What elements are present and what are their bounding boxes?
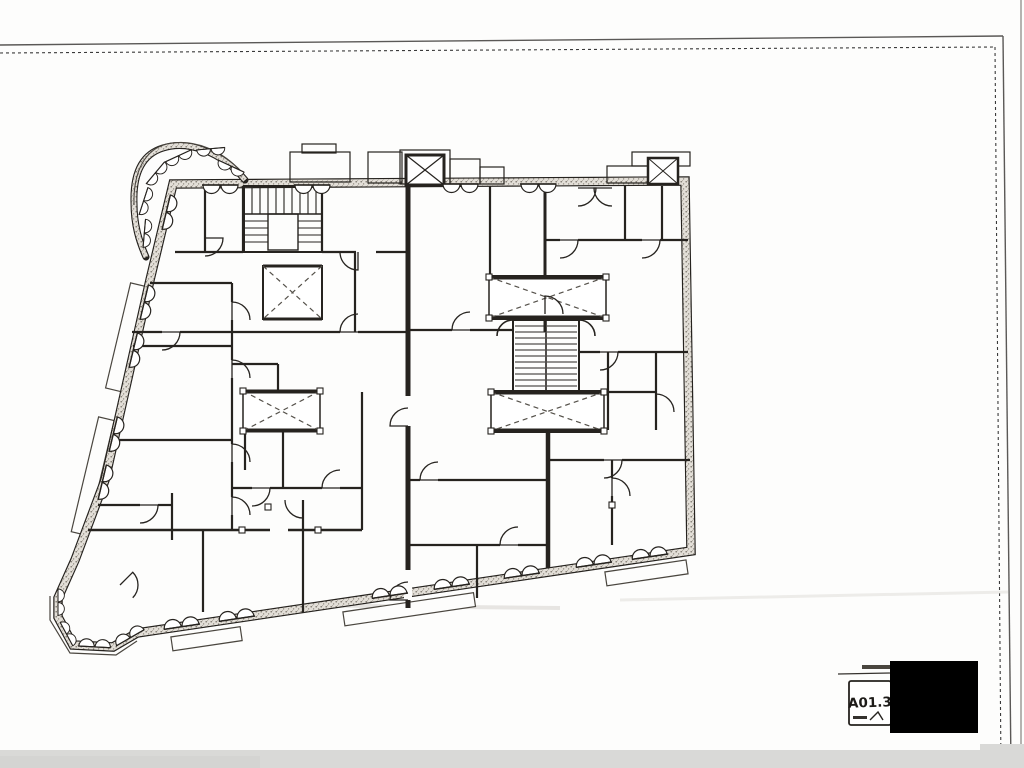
light-well-center: [488, 389, 607, 434]
floor-plan: [50, 142, 691, 655]
scanned-sheet: A01.3: [0, 0, 1024, 768]
floor-plan-svg: A01.3: [0, 0, 1024, 768]
light-well-top-left: [263, 265, 322, 321]
light-well-top-center: [486, 274, 609, 321]
elevator-shaft-top-center: [406, 155, 444, 185]
illegible-caption: [862, 665, 892, 669]
elevator-shaft-top-right: [648, 158, 678, 184]
redaction-box: [890, 661, 978, 733]
title-block: A01.3: [838, 661, 978, 733]
sheet-number: A01.3: [848, 694, 892, 712]
illegible-subtext: [853, 716, 867, 719]
light-well-mid-left: [240, 388, 323, 434]
